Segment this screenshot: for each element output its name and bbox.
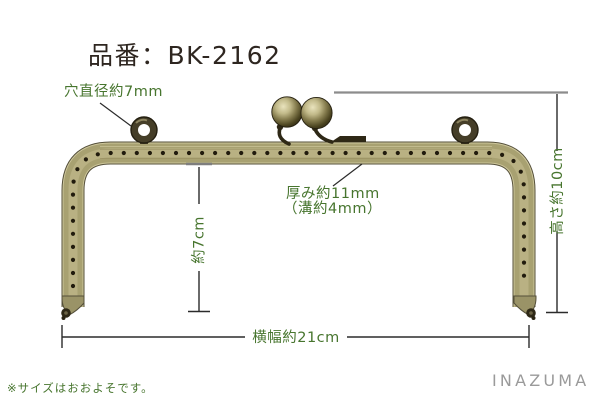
- sewing-hole: [71, 284, 75, 288]
- sewing-hole: [72, 180, 76, 184]
- purse-frame: [71, 147, 526, 308]
- sewing-hole: [84, 157, 88, 161]
- sewing-hole: [383, 151, 387, 155]
- pointer-line: [333, 164, 362, 186]
- sewing-hole: [409, 151, 413, 155]
- left-hinge-knob-highlight: [64, 311, 68, 315]
- right-hinge-knob-highlight: [529, 311, 533, 315]
- sewing-hole: [522, 221, 526, 225]
- sewing-hole: [511, 159, 515, 163]
- sewing-hole: [239, 151, 243, 155]
- sewing-hole: [370, 151, 374, 155]
- sewing-hole: [522, 248, 526, 252]
- frame-feet: [61, 296, 536, 320]
- sewing-hole: [522, 195, 526, 199]
- frame-height-label: 高さ約10cm: [549, 147, 566, 235]
- sewing-hole: [75, 167, 79, 171]
- sewing-hole: [304, 151, 308, 155]
- frame-width-label: 横幅約21cm: [252, 329, 340, 346]
- sewing-hole: [71, 245, 75, 249]
- sewing-holes: [71, 151, 526, 288]
- sewing-hole: [435, 151, 439, 155]
- right-hinge-tip: [532, 316, 536, 320]
- sewing-hole: [187, 151, 191, 155]
- sewing-hole: [174, 151, 178, 155]
- sewing-hole: [265, 151, 269, 155]
- hole-diameter-label: 穴直径約7mm: [64, 83, 163, 100]
- sewing-hole: [252, 151, 256, 155]
- sewing-hole: [135, 151, 139, 155]
- sewing-hole: [200, 151, 204, 155]
- sewing-hole: [396, 151, 400, 155]
- sewing-hole: [71, 193, 75, 197]
- right-clasp-stem: [315, 129, 332, 142]
- sewing-hole: [522, 182, 526, 186]
- inner-height-label: 約7cm: [191, 216, 208, 264]
- sewing-hole: [122, 151, 126, 155]
- sewing-hole: [226, 151, 230, 155]
- sewing-hole: [357, 151, 361, 155]
- ring-hole: [138, 124, 150, 136]
- left-hinge-tip: [62, 316, 66, 320]
- sewing-hole: [448, 151, 452, 155]
- annotation-thickness: 厚み約11mm （溝約4mm）: [283, 164, 382, 217]
- sewing-hole: [71, 258, 75, 262]
- sewing-hole: [109, 151, 113, 155]
- sewing-hole: [522, 208, 526, 212]
- product-spec-image: 約7cm 高さ約10cm 横幅約21cm 穴直径約7mm 厚み約11mm （溝約…: [0, 0, 600, 400]
- sewing-hole: [522, 274, 526, 278]
- kiss-lock-clasp: [272, 97, 366, 144]
- sewing-hole: [148, 151, 152, 155]
- left-strap-ring: [131, 117, 157, 144]
- sewing-hole: [71, 232, 75, 236]
- sewing-hole: [317, 151, 321, 155]
- sewing-hole: [500, 153, 504, 157]
- sewing-hole: [344, 151, 348, 155]
- sewing-hole: [71, 219, 75, 223]
- frame-metal: [73, 153, 524, 307]
- sewing-hole: [487, 151, 491, 155]
- frame-sheen: [73, 153, 524, 307]
- size-footnote: ※サイズはおおよそです。: [7, 381, 154, 395]
- sewing-hole: [71, 206, 75, 210]
- sewing-hole: [96, 152, 100, 156]
- groove-label: （溝約4mm）: [283, 200, 382, 217]
- product-code: 品番：BK-2162: [88, 41, 282, 70]
- left-clasp-ball: [272, 97, 302, 127]
- sewing-hole: [522, 234, 526, 238]
- sewing-hole: [278, 151, 282, 155]
- sewing-hole: [291, 151, 295, 155]
- sewing-hole: [522, 261, 526, 265]
- dimension-frame-width: 横幅約21cm: [62, 325, 529, 348]
- sewing-hole: [519, 170, 523, 174]
- dimension-inner-height: 約7cm: [186, 164, 212, 312]
- thickness-label: 厚み約11mm: [286, 185, 380, 202]
- frame-rim: [73, 153, 524, 307]
- purse-frame-diagram: 約7cm 高さ約10cm 横幅約21cm 穴直径約7mm 厚み約11mm （溝約…: [0, 0, 600, 400]
- right-strap-ring: [452, 117, 478, 144]
- sewing-hole: [474, 151, 478, 155]
- brand-logo: INAZUMA: [492, 371, 589, 390]
- sewing-hole: [461, 151, 465, 155]
- sewing-hole: [213, 151, 217, 155]
- sewing-hole: [71, 271, 75, 275]
- frame-edge: [73, 153, 524, 307]
- clasp-lever: [331, 136, 366, 142]
- ring-hole: [459, 124, 471, 136]
- pointer-line: [100, 103, 131, 126]
- right-clasp-ball: [301, 97, 332, 128]
- sewing-hole: [331, 151, 335, 155]
- sewing-hole: [161, 151, 165, 155]
- sewing-hole: [422, 151, 426, 155]
